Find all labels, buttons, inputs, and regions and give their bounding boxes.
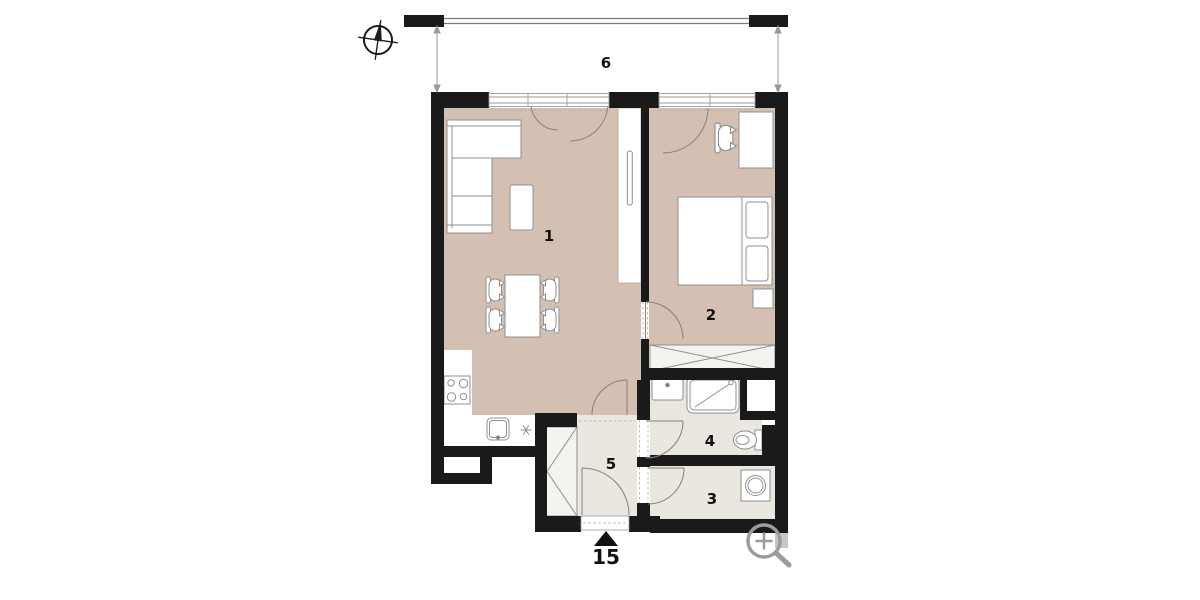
room-3-label: 3 [707,490,717,508]
toilet [734,430,763,450]
dining-table [505,275,540,337]
room-4-label: 4 [705,432,715,450]
pillow [746,246,768,281]
hallway-wardrobe [546,427,577,516]
wall-notch-interior [444,457,480,473]
bedroom-wardrobe [650,345,775,371]
cooktop [444,376,470,404]
entrance-unit-label: 15 [592,545,620,569]
coffee-table [510,185,533,230]
room-5-label: 5 [606,455,616,473]
shower [687,377,739,413]
bedroom-window [659,94,755,107]
living-room-window [489,94,609,107]
pillow [746,202,768,238]
balcony [404,15,788,92]
room-1-label: 1 [544,227,554,245]
fridge-symbol [521,425,532,435]
kitchen-sink [487,418,509,440]
balcony-label: 6 [601,54,611,72]
shaft-interior [747,380,775,411]
sliding-door-leaf [627,151,632,205]
floor-plan-page: 1 2 3 4 5 6 15 [0,0,1200,600]
entrance-sill [581,516,629,530]
room-2-label: 2 [706,306,716,324]
bed [678,197,772,285]
nightstand [753,289,773,308]
bathroom-sink [652,379,683,400]
entrance-arrow [594,531,618,546]
floor-plan-drawing: 1 2 3 4 5 6 15 [0,0,1200,600]
entrance-marker [594,531,618,546]
desk-chair [715,123,736,153]
desk [739,112,773,168]
north-arrow-icon [355,17,400,62]
washing-machine [741,470,770,501]
